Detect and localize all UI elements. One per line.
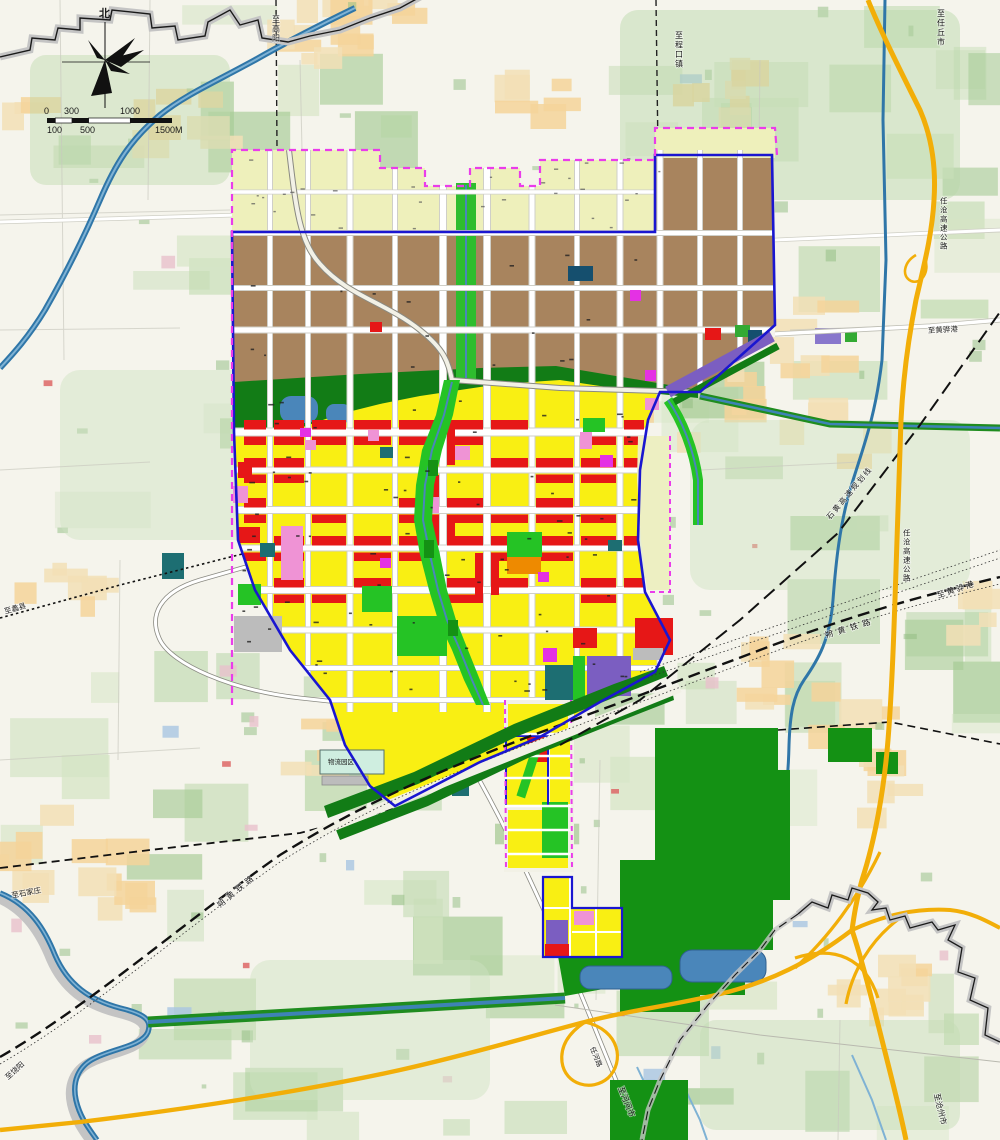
map-canvas: 北 0 300 1000 100 500 1500M 至高阳 至程口镇 至任丘市… (0, 0, 1000, 1140)
planning-map: 北 0 300 1000 100 500 1500M 至高阳 至程口镇 至任丘市… (0, 0, 1000, 1140)
scale-tick-300: 300 (64, 106, 79, 116)
scale-tick-1500: 1500M (155, 125, 183, 135)
label-to-renqiu: 至任丘市 (937, 9, 945, 47)
label-rencang-expwy-north: 任沧高速公路 (940, 196, 948, 251)
label-logistics-park: 物流园区 (328, 757, 355, 766)
lake-west (580, 966, 672, 989)
reserve-zone-northeast (655, 128, 775, 158)
scale-tick-100: 100 (47, 125, 62, 135)
scale-tick-1000: 1000 (120, 106, 140, 116)
compass-north-label: 北 (99, 6, 110, 20)
label-to-gaoyang: 至高阳 (272, 15, 280, 43)
scale-tick-0: 0 (44, 106, 49, 116)
pond-west (280, 396, 318, 423)
label-to-huanghua-north: 至黄骅港 (928, 323, 959, 335)
label-rencang-expwy-south: 任沧高速公路 (903, 528, 911, 583)
scale-tick-500: 500 (80, 125, 95, 135)
label-to-chengkou: 至程口镇 (675, 31, 683, 69)
